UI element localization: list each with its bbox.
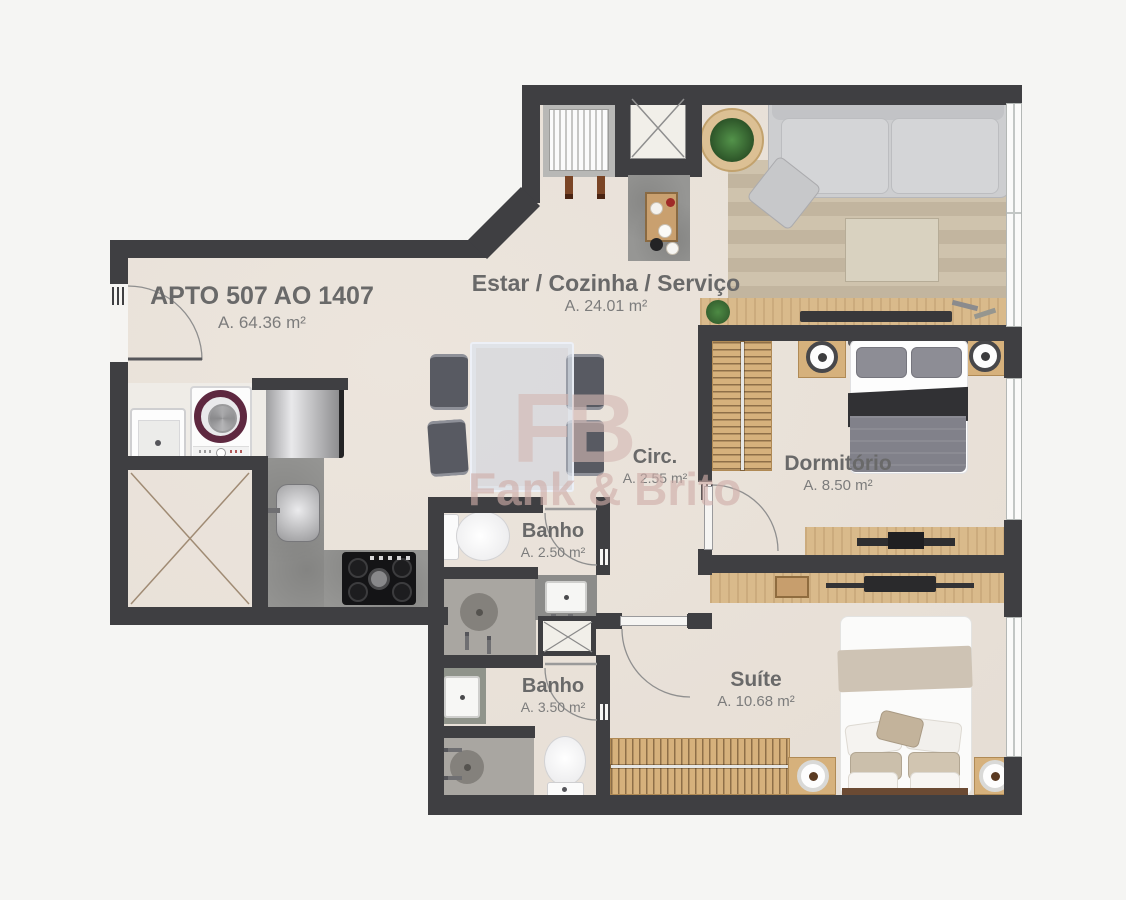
cooktop-knobs [370,556,410,560]
suite-wardrobe-rail [611,765,789,768]
suite-door-tick-left [615,614,620,628]
room-area: A. 10.68 m² [717,693,795,710]
cooktop-burner-3 [348,582,368,602]
laundry-tub-drain [155,440,161,446]
room-label-circ: Circ. A. 2.55 m² [623,446,688,486]
wall-circ-dorm [698,325,712,482]
vanity-social-drain [564,595,569,600]
suite-window [1006,617,1022,757]
room-name: Suíte [717,668,795,692]
living-tv [800,311,952,322]
wall-left-upper [110,240,128,286]
dorm-tv [888,532,924,549]
room-label-dormitorio: Dormitório A. 8.50 m² [784,452,891,494]
louver-closet [543,103,615,177]
wall-bottom [428,795,1022,815]
dining-chair-2 [427,419,469,478]
window-mullion [1013,618,1015,756]
cooktop-burner-2 [392,558,412,578]
room-area: A. 3.50 m² [521,699,586,715]
tray-bowl-dark [650,238,663,251]
wall-bottom-left-section [110,607,448,625]
wall-estar-dorm [698,325,1022,341]
wall-bath-right-thick [596,723,610,807]
kitchen-faucet [268,508,280,513]
suite-wardrobe [610,738,790,795]
room-name: Banho [521,675,586,698]
wall-shower-suite-div [438,726,535,738]
room-label-banho-suite: Banho A. 3.50 m² [521,675,586,715]
dorm-pillow-left [856,347,907,378]
room-label-suite: Suíte A. 10.68 m² [717,668,795,710]
room-name: Circ. [623,446,688,469]
sofa-cushion-right [891,118,999,194]
washer-lights [230,450,244,453]
vanity-suite-drain [460,695,465,700]
wall-dorm-suite [698,555,1022,573]
shower-social-drain [460,593,498,631]
coffee-table-plant [710,118,754,162]
shower-suite-valve-2 [444,776,462,780]
dorm-lamp-right [969,340,1001,372]
suite-shelf-tray [775,576,809,598]
wall-shaft-right [252,456,268,616]
apartment-title-block: APTO 507 AO 1407 A. 64.36 m² [150,282,374,333]
room-area: A. 2.55 m² [623,470,688,486]
dorm-wardrobe [712,341,772,471]
louver-handle-1 [565,176,573,199]
tray-bowl-white-1 [650,202,663,215]
elevator-shaft-void [630,97,686,159]
entry-door-jamb [112,287,124,305]
shower-suite-valve-1 [444,748,462,752]
room-name: Banho [521,520,586,543]
room-name: Dormitório [784,452,891,476]
room-name: Estar / Cozinha / Serviço [472,270,740,297]
window-bar [1007,212,1021,214]
suite-tv [864,576,936,592]
window-mullion [1013,104,1015,326]
wall-banho-suite-top [428,655,543,668]
kitchen-sink [276,484,320,542]
room-area: A. 24.01 m² [472,298,740,316]
dining-chair-1 [430,354,468,410]
refrigerator [266,382,344,458]
wall-top-left [110,240,488,258]
wall-fridge-stub [252,378,348,390]
wall-shower-social-div [438,567,538,579]
dorm-lamp-left [806,341,838,373]
suite-bed-blanket [837,646,972,693]
suite-lamp-left [797,760,829,792]
louver-handle-2 [597,176,605,199]
duct-shaft [538,616,596,656]
toilet-social-bowl [456,511,510,561]
living-rug-inner-panel [845,218,939,282]
washer-buttons [199,450,213,453]
wall-laundry-divider [122,456,268,470]
toilet-suite-bowl [544,736,586,786]
banho-social-door-jamb [598,549,610,565]
suite-door-leaf [620,616,688,626]
cooktop-burner-1 [348,558,368,578]
wall-left-lower [110,360,128,625]
cooktop-burner-4 [392,582,412,602]
apartment-title: APTO 507 AO 1407 [150,282,374,311]
living-window [1006,103,1022,327]
cooktop-burner-center [368,568,390,590]
dorm-window [1006,378,1022,520]
apartment-area: A. 64.36 m² [150,313,374,333]
room-area: A. 8.50 m² [784,477,891,494]
dorm-door-leaf [704,486,713,550]
toilet-suite-button [562,787,567,792]
room-label-banho-social: Banho A. 2.50 m² [521,520,586,560]
wall-top [522,85,1022,105]
washer-drum [208,404,237,433]
dorm-wardrobe-rail [741,342,744,470]
wall-banho-social-top [428,497,543,513]
tray-cup-white [666,242,679,255]
tray-bowl-white-2 [658,224,672,238]
shower-social-valve-1 [465,632,469,650]
room-label-estar: Estar / Cozinha / Serviço A. 24.01 m² [472,270,740,316]
window-mullion [1013,379,1015,519]
tray-cup-red [666,198,675,207]
dorm-pillow-right [911,347,962,378]
floor-plan: APTO 507 AO 1407 A. 64.36 m² Estar / Coz… [0,0,1126,900]
banho-suite-door-jamb [598,704,610,720]
room-area: A. 2.50 m² [521,544,586,560]
dining-table [470,342,574,492]
shower-social-valve-2 [487,636,491,654]
suite-door-tick-right [687,614,692,628]
